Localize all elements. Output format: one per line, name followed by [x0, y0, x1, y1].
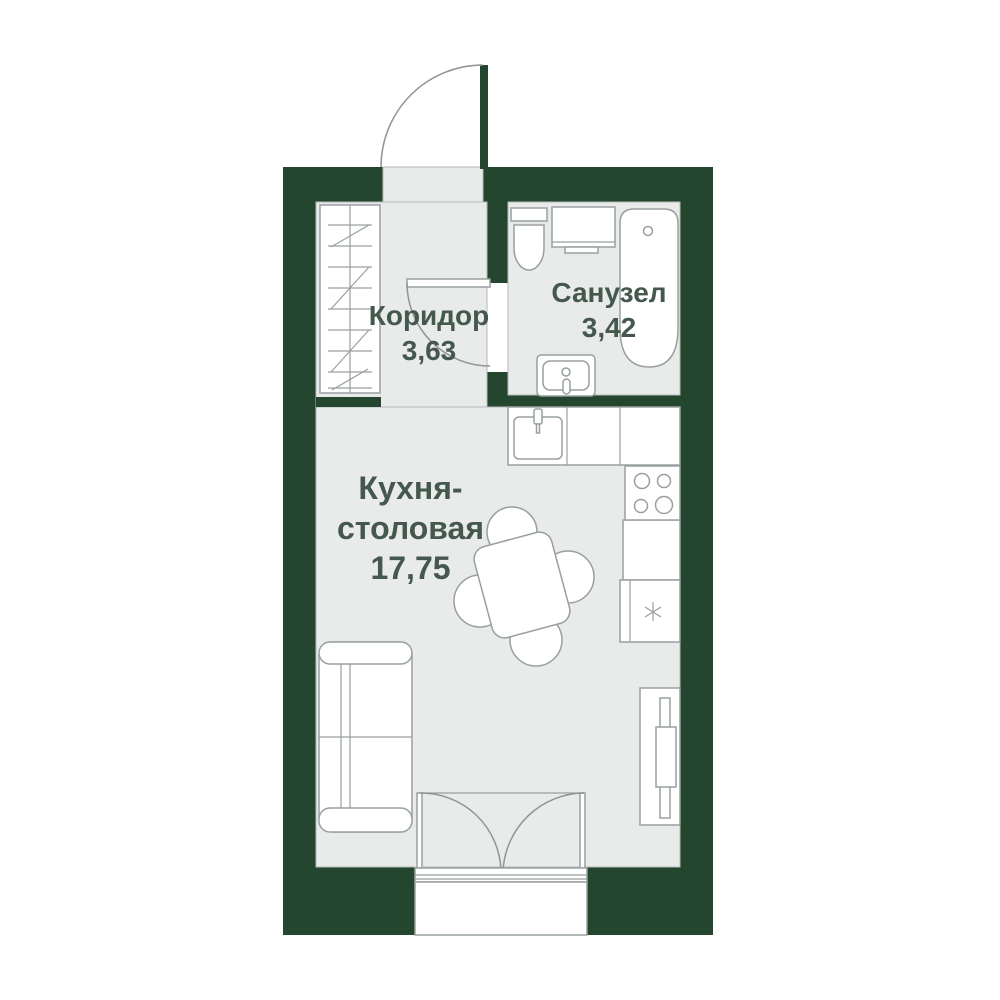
kitchen-name-line2: столовая [318, 508, 503, 548]
stove [625, 466, 680, 520]
kitchen-area: 17,75 [318, 548, 503, 588]
wall-stub [316, 397, 381, 407]
toilet [511, 208, 547, 270]
entry-floor [383, 167, 483, 203]
balcony [415, 882, 587, 935]
bathroom-name: Санузел [529, 275, 689, 310]
kitchen-label: Кухня- столовая 17,75 [318, 468, 503, 588]
window-sill [415, 868, 587, 882]
corridor-area: 3,63 [349, 333, 509, 368]
corridor-label: Коридор 3,63 [349, 298, 509, 368]
washing-machine [552, 207, 615, 253]
entrance-door-arc [381, 65, 483, 167]
bathroom-area: 3,42 [529, 310, 689, 345]
floor-plan: Коридор 3,63 Санузел 3,42 Кухня- столова… [0, 0, 1000, 1000]
kitchen-name-line1: Кухня- [318, 468, 503, 508]
corridor-name: Коридор [349, 298, 509, 333]
kitchen-sink [514, 409, 562, 459]
sofa [319, 642, 412, 832]
bathroom-label: Санузел 3,42 [529, 275, 689, 345]
tv-unit [640, 688, 680, 825]
entrance-door-leaf [480, 65, 488, 169]
bathroom-sink [537, 355, 595, 396]
fridge [620, 580, 680, 642]
